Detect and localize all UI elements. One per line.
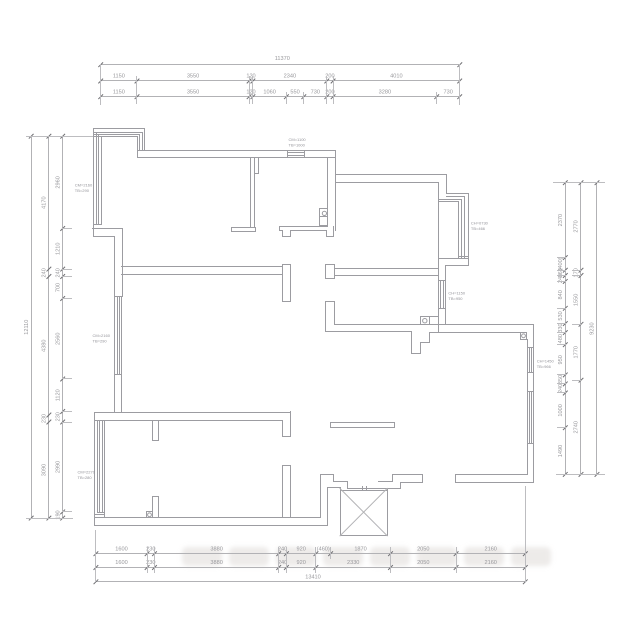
svg-text:2050: 2050 [417, 546, 429, 552]
svg-text:3280: 3280 [379, 89, 391, 95]
svg-text:2050: 2050 [417, 560, 429, 566]
svg-text:550: 550 [290, 89, 299, 95]
svg-text:3880: 3880 [210, 546, 222, 552]
svg-text:2740: 2740 [574, 421, 580, 433]
svg-text:230: 230 [55, 412, 61, 421]
svg-text:240: 240 [278, 560, 287, 566]
svg-text:2990: 2990 [55, 461, 61, 473]
svg-text:3880: 3880 [210, 560, 222, 566]
svg-text:CH=1450: CH=1450 [537, 358, 555, 363]
svg-text:4170: 4170 [42, 196, 48, 208]
svg-text:240: 240 [42, 268, 48, 277]
svg-text:3550: 3550 [187, 89, 199, 95]
svg-text:1600: 1600 [115, 560, 127, 566]
svg-text:12110: 12110 [24, 320, 30, 335]
svg-text:CM=2160: CM=2160 [93, 333, 111, 338]
svg-text:730: 730 [444, 89, 453, 95]
svg-text:120: 120 [246, 89, 255, 95]
svg-text:1060: 1060 [263, 89, 275, 95]
svg-text:2340: 2340 [284, 74, 296, 80]
svg-text:1150: 1150 [113, 89, 125, 95]
svg-text:700: 700 [55, 283, 61, 292]
svg-text:920: 920 [296, 560, 305, 566]
svg-text:4010: 4010 [390, 74, 402, 80]
svg-text:2330: 2330 [347, 560, 359, 566]
svg-text:TB=280: TB=280 [78, 475, 93, 480]
svg-text:TB=466: TB=466 [471, 226, 486, 231]
svg-text:920: 920 [296, 546, 305, 552]
svg-text:1120: 1120 [55, 389, 61, 401]
svg-text:11370: 11370 [275, 56, 290, 62]
svg-text:1150: 1150 [113, 74, 125, 80]
svg-text:3090: 3090 [42, 464, 48, 476]
svg-text:TB=290: TB=290 [93, 339, 108, 344]
svg-text:1210: 1210 [55, 243, 61, 255]
svg-text:4380: 4380 [42, 340, 48, 352]
svg-text:9230: 9230 [590, 322, 596, 334]
svg-text:480: 480 [558, 334, 564, 343]
svg-text:240: 240 [278, 546, 287, 552]
svg-text:TB=290: TB=290 [75, 188, 90, 193]
svg-text:(460): (460) [317, 546, 330, 552]
svg-text:CH=1150: CH=1150 [448, 290, 465, 295]
svg-text:3550: 3550 [187, 74, 199, 80]
svg-text:350: 350 [558, 375, 564, 384]
svg-text:240: 240 [55, 268, 61, 277]
svg-text:TB=966: TB=966 [537, 364, 552, 369]
svg-text:2370: 2370 [558, 214, 564, 226]
svg-text:240: 240 [558, 384, 564, 393]
svg-text:170: 170 [574, 268, 580, 277]
svg-text:CM=1100: CM=1100 [289, 137, 307, 142]
svg-text:530: 530 [558, 311, 564, 320]
svg-text:13410: 13410 [305, 574, 321, 580]
svg-text:2770: 2770 [574, 220, 580, 232]
svg-text:950: 950 [558, 355, 564, 364]
svg-text:CM=2270: CM=2270 [78, 470, 96, 475]
svg-text:2960: 2960 [55, 176, 61, 188]
svg-text:1770: 1770 [574, 346, 580, 358]
svg-text:2560: 2560 [55, 333, 61, 345]
svg-text:840: 840 [558, 290, 564, 299]
svg-text:2160: 2160 [484, 560, 496, 566]
svg-text:1600: 1600 [115, 546, 127, 552]
svg-text:2160: 2160 [484, 546, 496, 552]
svg-text:TB=1000: TB=1000 [289, 143, 306, 148]
svg-text:330: 330 [558, 323, 564, 332]
svg-text:1870: 1870 [354, 546, 366, 552]
svg-text:730: 730 [311, 89, 320, 95]
svg-text:230: 230 [42, 414, 48, 423]
svg-text:CM=2160: CM=2160 [75, 182, 93, 187]
svg-text:CH=0730: CH=0730 [471, 221, 489, 226]
svg-text:TB=950: TB=950 [448, 296, 463, 301]
svg-text:120: 120 [246, 74, 255, 80]
svg-text:1000: 1000 [558, 404, 564, 416]
svg-text:1550: 1550 [574, 294, 580, 306]
svg-text:1490: 1490 [558, 445, 564, 457]
